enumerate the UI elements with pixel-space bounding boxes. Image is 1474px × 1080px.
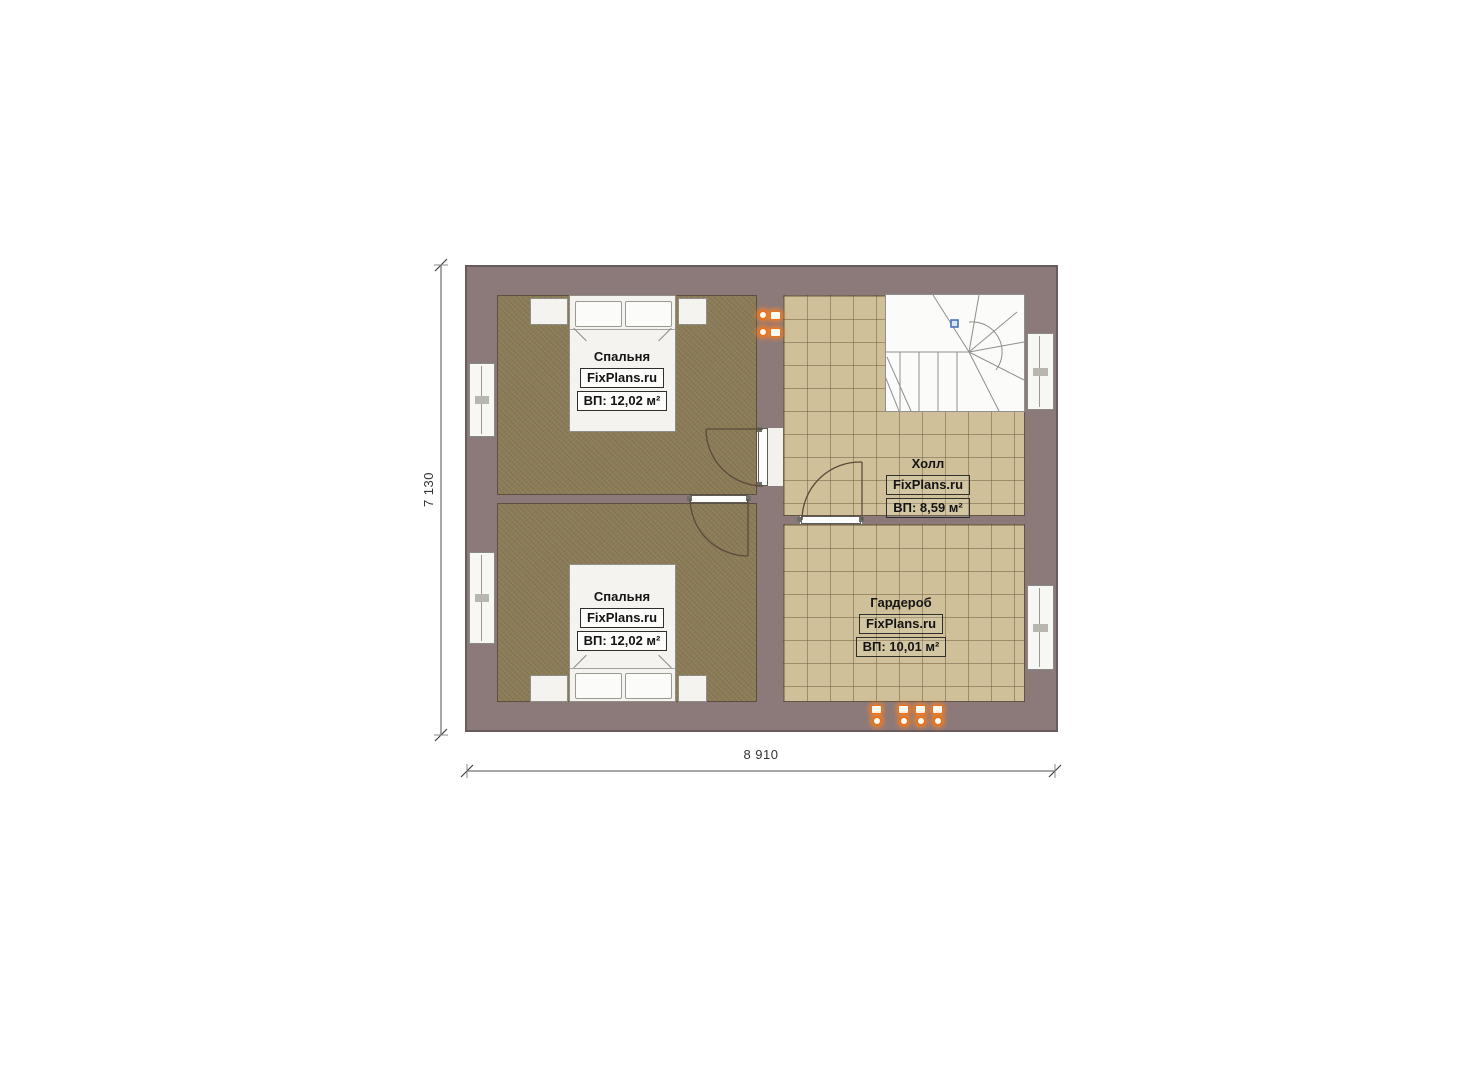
window-left-lower — [469, 552, 495, 644]
window-center-tick — [475, 594, 489, 602]
brand-label: FixPlans.ru — [859, 614, 943, 634]
window-center-tick — [475, 396, 489, 404]
room-label-bedroom-bottom: Спальня FixPlans.ru ВП: 12,02 м² — [567, 589, 677, 651]
window-right-upper — [1027, 333, 1054, 410]
nightstand — [530, 298, 568, 325]
bed-headboard-line — [570, 329, 675, 330]
door-hinge — [757, 427, 762, 432]
dimension-width-label: 8 910 — [460, 747, 1062, 762]
room-label-wardrobe: Гардероб FixPlans.ru ВП: 10,01 м² — [846, 595, 956, 657]
door-leaf-hall-wardrobe — [801, 516, 861, 524]
socket-bar — [915, 705, 926, 714]
socket-bar — [770, 311, 781, 320]
room-name: Гардероб — [870, 595, 931, 611]
power-socket-icon — [915, 705, 926, 726]
power-socket-icon — [871, 705, 882, 726]
door-hinge — [757, 482, 762, 487]
power-socket-icon — [932, 705, 943, 726]
room-label-bedroom-top: Спальня FixPlans.ru ВП: 12,02 м² — [567, 349, 677, 411]
blanket-fold — [573, 655, 586, 668]
window-left-upper — [469, 363, 495, 437]
door-hinge — [797, 517, 802, 522]
door-hinge — [746, 496, 751, 501]
window-center-tick — [1033, 368, 1048, 376]
socket-dot — [872, 716, 882, 726]
floor-plan-canvas: Спальня FixPlans.ru ВП: 12,02 м² Спальня… — [0, 0, 1474, 1080]
window-right-lower — [1027, 585, 1054, 670]
room-area: ВП: 10,01 м² — [856, 637, 947, 657]
dimension-height-label: 7 130 — [421, 472, 436, 507]
door-leaf-bedroom-top-hall — [758, 428, 768, 486]
pillow — [575, 673, 622, 699]
brand-label: FixPlans.ru — [580, 368, 664, 388]
socket-bar — [871, 705, 882, 714]
door-hinge — [687, 496, 692, 501]
door-leaf-bedrooms — [690, 495, 748, 503]
socket-dot — [899, 716, 909, 726]
socket-bar — [898, 705, 909, 714]
room-name: Спальня — [594, 589, 650, 605]
socket-bar — [770, 328, 781, 337]
room-label-hall: Холл FixPlans.ru ВП: 8,59 м² — [873, 456, 983, 518]
staircase-drawing — [885, 294, 1025, 412]
blanket-fold — [658, 655, 671, 668]
room-name: Холл — [912, 456, 945, 472]
power-socket-icon — [758, 310, 781, 320]
stair-direction-marker — [951, 320, 958, 327]
door-hinge — [859, 517, 864, 522]
room-name: Спальня — [594, 349, 650, 365]
power-socket-icon — [758, 327, 781, 337]
socket-dot — [916, 716, 926, 726]
pillow — [625, 301, 672, 327]
window-center-tick — [1033, 624, 1048, 632]
pillow — [625, 673, 672, 699]
power-socket-icon — [898, 705, 909, 726]
building-plan: Спальня FixPlans.ru ВП: 12,02 м² Спальня… — [467, 267, 1056, 730]
pillow — [575, 301, 622, 327]
nightstand — [530, 675, 568, 702]
room-area: ВП: 8,59 м² — [886, 498, 970, 518]
room-area: ВП: 12,02 м² — [577, 391, 668, 411]
staircase — [885, 294, 1025, 412]
socket-bar — [932, 705, 943, 714]
socket-dot — [933, 716, 943, 726]
nightstand — [678, 675, 707, 702]
nightstand — [678, 298, 707, 325]
socket-dot — [758, 310, 768, 320]
brand-label: FixPlans.ru — [886, 475, 970, 495]
bed-headboard-line — [570, 668, 675, 669]
socket-dot — [758, 327, 768, 337]
brand-label: FixPlans.ru — [580, 608, 664, 628]
room-area: ВП: 12,02 м² — [577, 631, 668, 651]
dimension-line-horizontal — [460, 762, 1062, 780]
